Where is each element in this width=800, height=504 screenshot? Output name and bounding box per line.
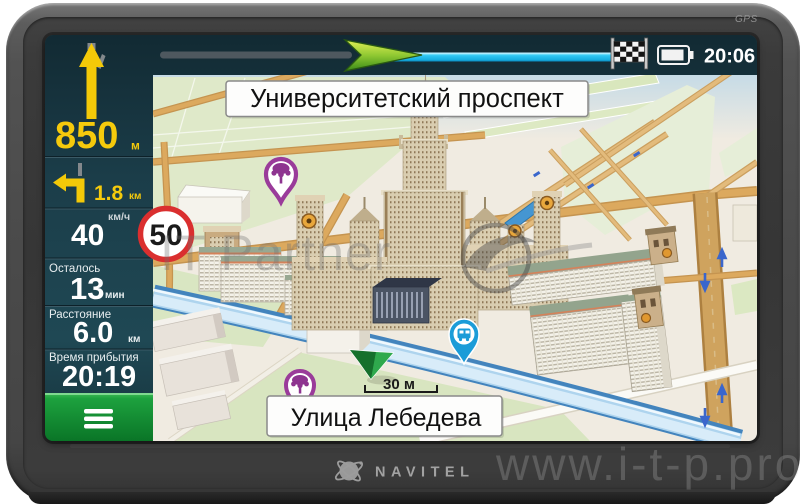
svg-text:мин: мин <box>105 290 125 301</box>
svg-text:20:19: 20:19 <box>62 361 136 393</box>
svg-text:Университетский проспект: Университетский проспект <box>250 85 564 113</box>
svg-text:Улица Лебедева: Улица Лебедева <box>291 404 482 432</box>
svg-text:13: 13 <box>70 271 104 306</box>
svg-text:NAVITEL: NAVITEL <box>375 465 474 481</box>
svg-text:км: км <box>128 334 140 345</box>
svg-text:20:06: 20:06 <box>704 46 755 68</box>
svg-text:40: 40 <box>71 219 104 252</box>
svg-text:30 м: 30 м <box>383 376 415 393</box>
svg-text:1.8: 1.8 <box>94 182 124 205</box>
svg-text:км: км <box>129 191 141 202</box>
svg-text:км/ч: км/ч <box>108 211 130 223</box>
svg-text:м: м <box>131 139 140 153</box>
svg-text:6.0: 6.0 <box>73 317 113 349</box>
svg-text:850: 850 <box>55 115 118 157</box>
